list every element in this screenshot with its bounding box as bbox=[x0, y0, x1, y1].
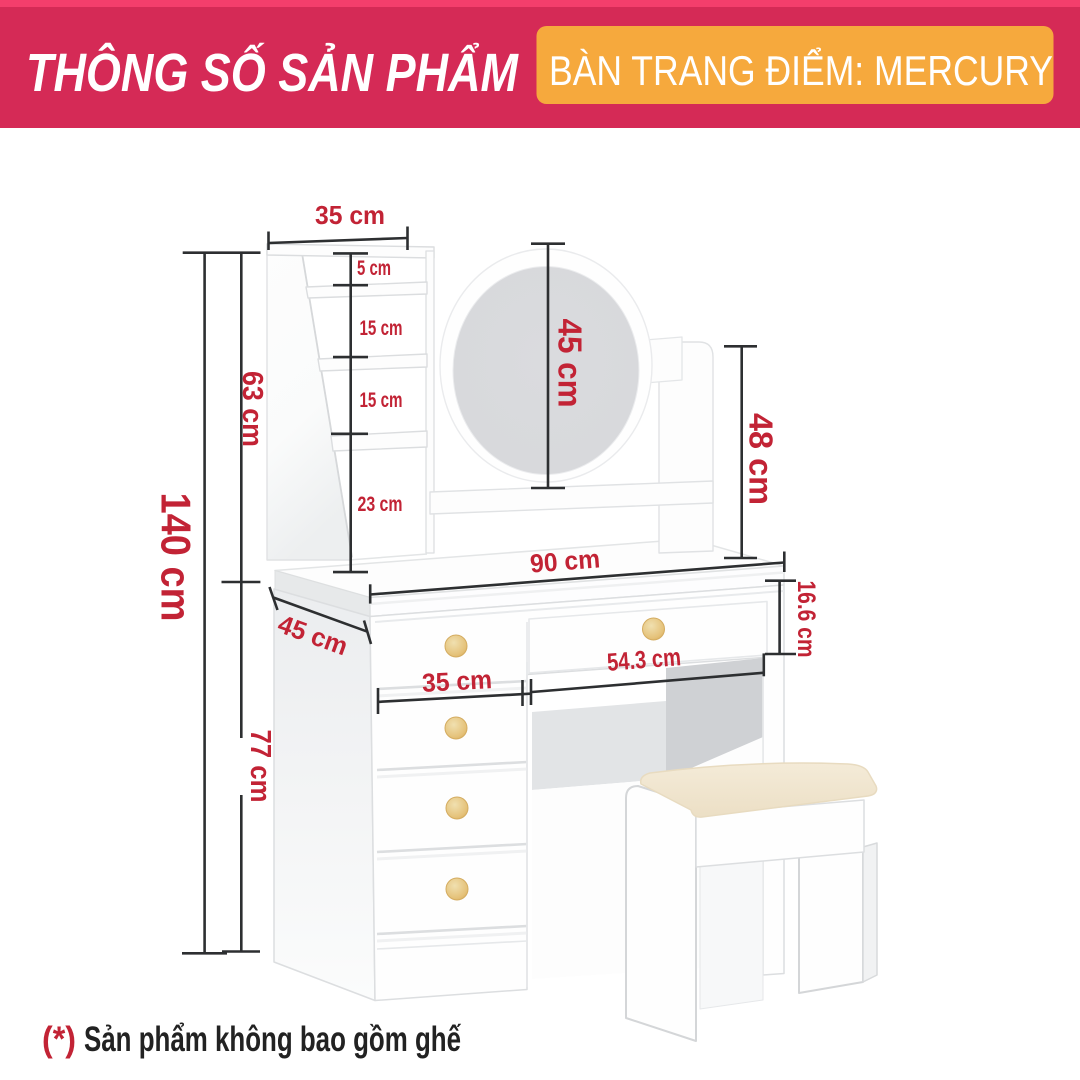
svg-text:90 cm: 90 cm bbox=[529, 543, 601, 578]
svg-text:BÀN TRANG ĐIỂM: MERCURY: BÀN TRANG ĐIỂM: MERCURY bbox=[549, 46, 1053, 94]
svg-text:16.6 cm: 16.6 cm bbox=[792, 581, 820, 658]
svg-text:35 cm: 35 cm bbox=[421, 664, 492, 698]
svg-text:15 cm: 15 cm bbox=[360, 389, 403, 412]
svg-text:35 cm: 35 cm bbox=[315, 200, 385, 230]
svg-text:15 cm: 15 cm bbox=[360, 317, 403, 340]
svg-text:54.3 cm: 54.3 cm bbox=[606, 643, 682, 677]
svg-text:48 cm: 48 cm bbox=[743, 413, 780, 505]
svg-text:5 cm: 5 cm bbox=[357, 257, 391, 280]
svg-text:45 cm: 45 cm bbox=[552, 319, 589, 408]
svg-text:77 cm: 77 cm bbox=[244, 730, 276, 803]
svg-text:63 cm: 63 cm bbox=[236, 371, 268, 447]
svg-text:(*): (*) bbox=[42, 1020, 76, 1059]
svg-text:THÔNG SỐ SẢN PHẨM: THÔNG SỐ SẢN PHẨM bbox=[26, 42, 519, 103]
svg-text:23 cm: 23 cm bbox=[358, 493, 403, 516]
svg-text:Sản phẩm không bao gồm ghế: Sản phẩm không bao gồm ghế bbox=[84, 1020, 461, 1059]
svg-text:140 cm: 140 cm bbox=[153, 493, 200, 622]
